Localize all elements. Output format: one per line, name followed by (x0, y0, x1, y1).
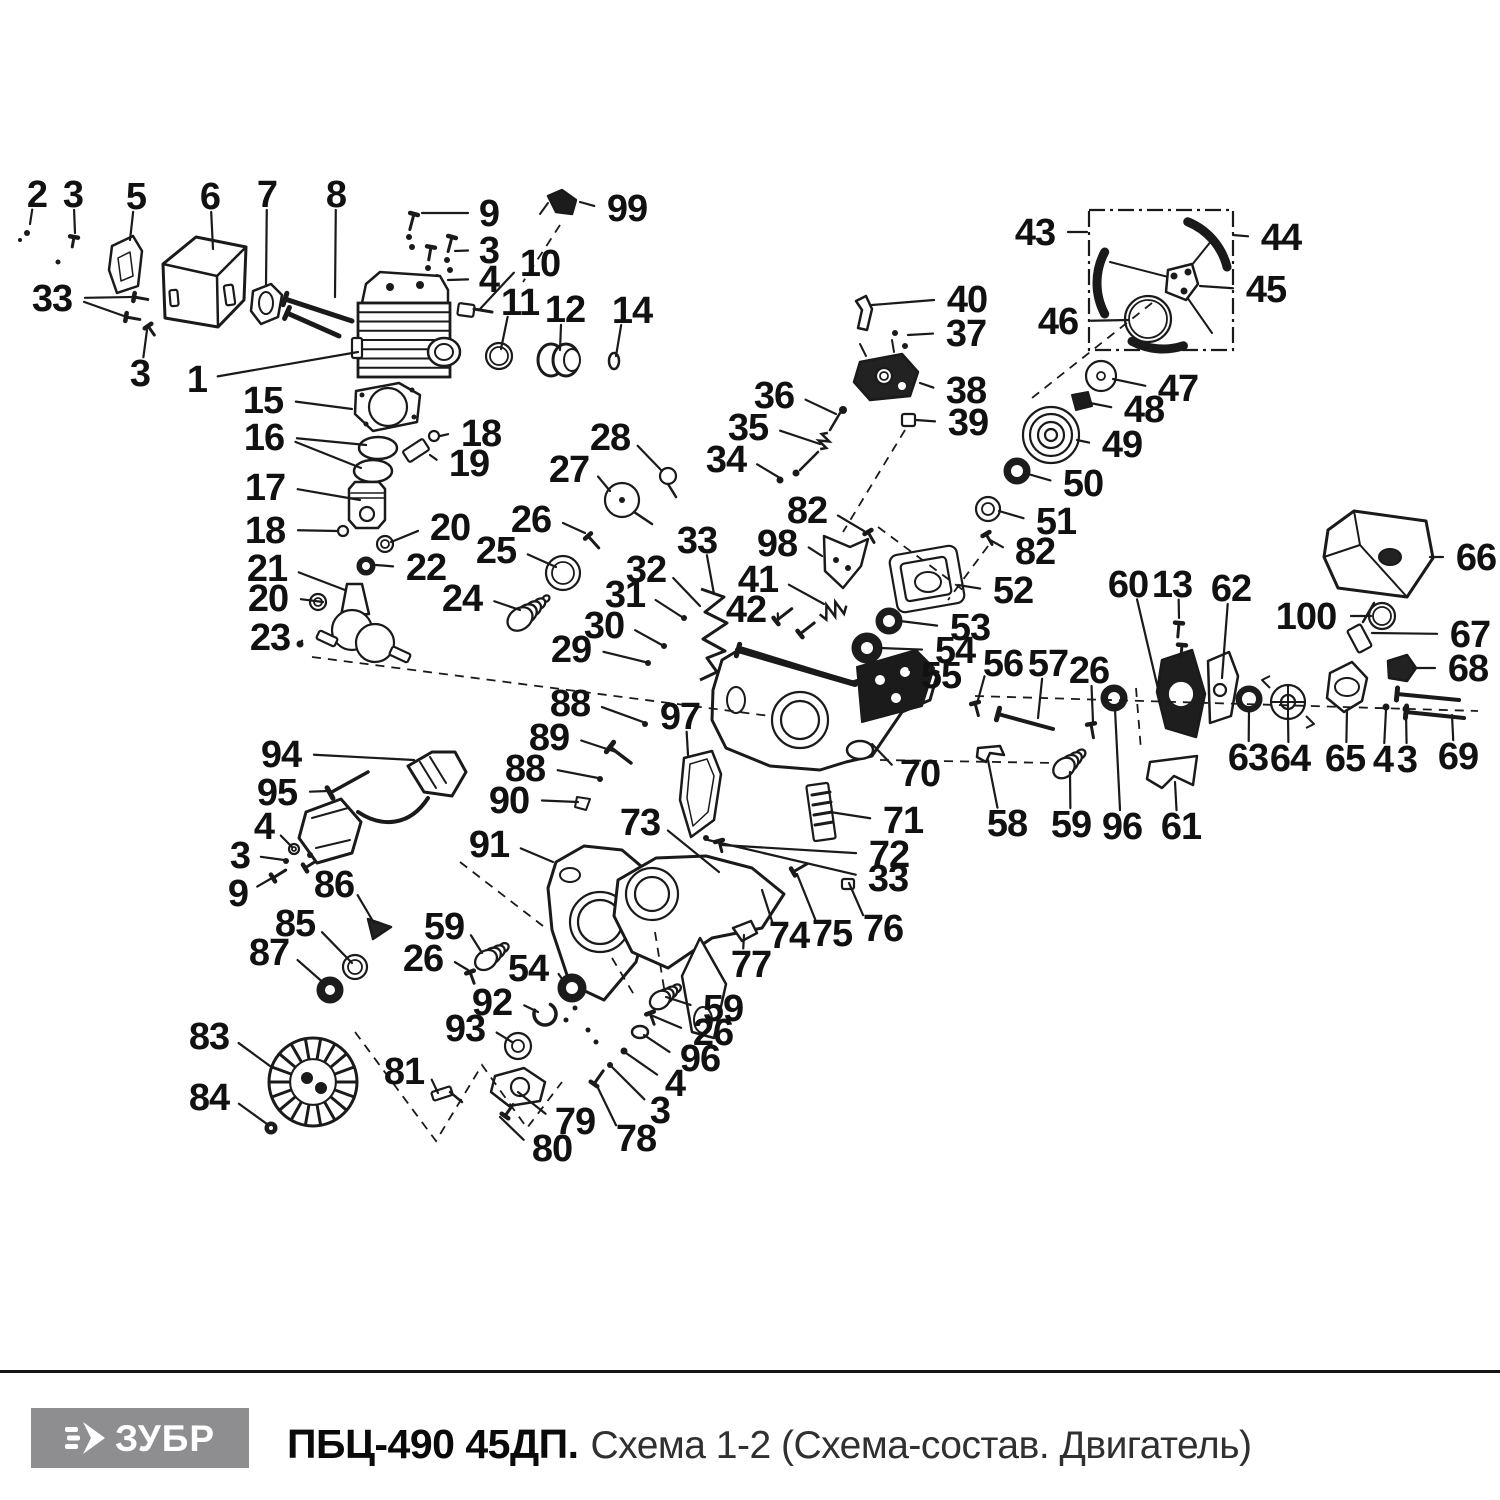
leader-line-96 (1115, 709, 1120, 810)
leader-line-67 (1372, 633, 1437, 634)
leader-line-71 (830, 812, 870, 818)
leader-line-20 (391, 531, 418, 542)
footer-divider (0, 1370, 1500, 1373)
fastener-dot (416, 281, 424, 289)
fastener-dot (902, 343, 908, 349)
part-number-label-13: 13 (1152, 564, 1192, 606)
part-number-label-76: 76 (863, 908, 903, 950)
part-number-label-12: 12 (545, 289, 585, 331)
part-number-label-62: 62 (1211, 568, 1251, 610)
poly-part (1147, 756, 1197, 788)
part-number-label-69: 69 (1438, 736, 1478, 778)
part-number-label-23: 23 (250, 617, 290, 659)
bolt-head (736, 644, 739, 656)
fastener-dot (645, 660, 651, 666)
screw-head (1175, 623, 1183, 624)
part-number-label-90: 90 (489, 780, 529, 822)
fastener-dot (898, 382, 906, 390)
screw-head (133, 293, 134, 301)
leader-line-4 (626, 1053, 657, 1075)
ring-part (1176, 689, 1186, 699)
concentric-part (626, 868, 678, 920)
fastener-dot (18, 238, 22, 242)
leader-line-28 (638, 446, 662, 471)
part-number-label-26: 26 (1069, 650, 1109, 692)
poly-part (408, 752, 466, 796)
part-number-label-65: 65 (1325, 738, 1366, 780)
leader-line-85 (322, 932, 352, 963)
leader-line-16 (295, 442, 361, 468)
screw-shaft (410, 214, 414, 229)
fastener-dot (24, 230, 30, 236)
ellipse-part (1379, 549, 1401, 565)
part-number-label-44: 44 (1261, 217, 1302, 259)
fastener-dot (1185, 269, 1192, 276)
part-number-label-6: 6 (200, 176, 220, 218)
leader-line-21 (299, 572, 345, 590)
screw-head (646, 1012, 654, 1015)
part-number-label-83: 83 (189, 1016, 229, 1058)
part-number-label-22: 22 (406, 547, 446, 589)
spring-part (819, 433, 830, 449)
leader-line-41 (789, 585, 824, 604)
ellipse-part (847, 741, 873, 759)
leader-line-98 (809, 547, 822, 556)
screw-shaft (800, 623, 814, 634)
poly-part (548, 190, 576, 214)
poly-part (362, 272, 448, 303)
seal-part (325, 985, 335, 995)
leader-line-18 (440, 434, 448, 436)
part-number-label-55: 55 (921, 655, 962, 697)
part-number-label-20: 20 (248, 578, 288, 620)
leader-line-9 (257, 878, 272, 887)
arc-part (534, 1004, 556, 1025)
part-number-label-4: 4 (1373, 739, 1394, 781)
part-edge (800, 452, 818, 470)
ring-part (1097, 372, 1105, 380)
leader-line-36 (806, 400, 836, 414)
fastener-dot (1171, 273, 1178, 280)
bolt-head (285, 308, 290, 319)
poly-part (1166, 264, 1198, 300)
fastener-dot (594, 1040, 599, 1045)
leader-line-50 (1028, 474, 1050, 480)
leader-line-90 (542, 800, 578, 802)
leader-line-4 (448, 279, 468, 280)
fastener-dot (845, 565, 851, 571)
bolt-shaft (610, 747, 631, 763)
leader-line-15 (296, 402, 352, 409)
part-number-label-57: 57 (1028, 643, 1068, 685)
part-edge (634, 512, 652, 524)
ellipse-part (259, 292, 273, 314)
leader-line-92 (524, 1005, 538, 1012)
leader-line-94 (314, 755, 414, 760)
rect-part (1347, 624, 1372, 653)
leader-line-31 (656, 600, 682, 617)
construction-dashed-line (460, 862, 543, 926)
part-number-label-94: 94 (261, 734, 302, 776)
part-number-label-93: 93 (445, 1008, 485, 1050)
disc-part (1214, 684, 1226, 696)
part-number-label-34: 34 (706, 439, 747, 481)
leader-line-27 (598, 477, 610, 491)
part-number-label-81: 81 (384, 1051, 425, 1093)
part-number-label-56: 56 (983, 643, 1023, 685)
flywheel-hub (290, 1059, 336, 1105)
model-name: ПБЦ-490 45ДП. (287, 1421, 579, 1467)
bolt-head (1396, 688, 1397, 700)
ring-part (880, 372, 888, 380)
part-number-label-1: 1 (187, 359, 208, 401)
rect-part (402, 439, 429, 463)
part-number-label-17: 17 (245, 467, 285, 509)
part-number-label-18: 18 (245, 510, 285, 552)
rect-part (842, 879, 854, 889)
ring-part (1373, 607, 1391, 625)
flywheel-magnet (301, 1072, 313, 1084)
part-number-label-99: 99 (607, 188, 647, 230)
rect-part (224, 284, 236, 305)
rect-part (389, 646, 411, 663)
seal-part (1108, 692, 1120, 704)
construction-dashed-line (1136, 688, 1141, 750)
screw-shaft (594, 1071, 603, 1084)
part-number-label-87: 87 (249, 932, 289, 974)
ellipse-part (359, 437, 397, 459)
part-number-label-59: 59 (703, 988, 743, 1030)
part-number-label-4: 4 (479, 259, 500, 301)
poly-part (1306, 716, 1314, 728)
part-number-label-37: 37 (946, 313, 986, 355)
arc-part (1132, 341, 1183, 349)
ellipse-part (564, 349, 580, 371)
fastener-dot (833, 557, 839, 563)
ring-part (982, 503, 994, 515)
part-number-label-24: 24 (442, 578, 483, 620)
seal-part (362, 562, 370, 570)
bolt-shaft (1406, 712, 1464, 718)
part-number-label-68: 68 (1448, 648, 1488, 690)
page: 2356789993104111214333115161819171820222… (0, 0, 1500, 1500)
poly-part (368, 919, 391, 939)
disc-part (369, 388, 407, 426)
disc-part (360, 507, 374, 521)
part-number-label-9: 9 (479, 193, 499, 235)
part-number-label-3: 3 (63, 174, 83, 216)
part-number-label-28: 28 (590, 417, 630, 459)
fastener-dot (444, 257, 450, 263)
leader-line-8 (335, 210, 336, 297)
part-number-label-3: 3 (1397, 739, 1417, 781)
part-number-label-19: 19 (449, 443, 489, 485)
part-number-label-82: 82 (1015, 531, 1055, 573)
ellipse-part (609, 353, 619, 369)
seal-part (566, 982, 578, 994)
leader-line-18 (298, 530, 338, 531)
leader-line-26 (455, 962, 468, 970)
bolt-head (996, 708, 999, 720)
ellipse-part (435, 344, 453, 360)
ellipse-part (727, 687, 745, 713)
poly-part (575, 797, 590, 810)
ellipse-part (560, 868, 580, 882)
part-number-label-4: 4 (254, 806, 275, 848)
part-number-label-75: 75 (812, 913, 853, 955)
leader-line-46 (1091, 320, 1128, 321)
leader-line-86 (358, 895, 374, 923)
leader-line-58 (988, 760, 997, 808)
part-number-label-97: 97 (660, 696, 700, 738)
construction-dashed-line (843, 430, 905, 532)
part-edge (217, 276, 218, 327)
part-number-label-15: 15 (243, 380, 284, 422)
part-number-label-100: 100 (1276, 596, 1336, 638)
screw-head (410, 213, 418, 215)
bolt-shaft (998, 714, 1053, 729)
part-number-label-16: 16 (244, 417, 284, 459)
part-number-label-70: 70 (900, 753, 940, 795)
poly-part (1388, 655, 1416, 681)
rect-part (352, 338, 362, 358)
part-number-label-77: 77 (731, 944, 771, 986)
leader-line-3 (261, 857, 284, 860)
leader-line-7 (266, 210, 267, 286)
part-number-label-66: 66 (1456, 537, 1496, 579)
rect-part (902, 414, 915, 426)
part-number-label-33: 33 (32, 278, 72, 320)
leader-line-99 (580, 202, 594, 206)
leader-line-51 (999, 511, 1023, 518)
part-number-label-50: 50 (1063, 463, 1103, 505)
leader-line-48 (1090, 403, 1111, 407)
fastener-dot (1181, 288, 1188, 295)
part-number-label-3: 3 (130, 353, 150, 395)
leader-line-29 (604, 652, 645, 662)
screw-shaft (588, 536, 599, 548)
screw-head (466, 971, 474, 974)
footer-title: ПБЦ-490 45ДП.Схема 1-2 (Схема-состав. Дв… (287, 1421, 1252, 1468)
leader-line-34 (757, 464, 780, 478)
leader-line-35 (780, 431, 820, 444)
fastener-dot (410, 388, 415, 393)
part-number-label-9: 9 (228, 873, 248, 915)
part-edge (540, 203, 548, 214)
leader-line-96 (644, 1035, 669, 1052)
leader-line-70 (872, 744, 892, 765)
part-number-label-52: 52 (993, 570, 1033, 612)
seal-part (883, 615, 895, 627)
disc-part (338, 526, 348, 536)
part-number-label-86: 86 (314, 864, 354, 906)
leader-line-76 (849, 883, 863, 915)
fastener-dot (412, 415, 417, 420)
screw-head (1087, 723, 1095, 724)
part-edge (860, 344, 866, 356)
screw-head (448, 236, 456, 238)
rect-part (169, 290, 178, 307)
leader-line-39 (916, 420, 935, 421)
leader-line-87 (298, 960, 326, 985)
part-edge (892, 340, 894, 352)
part-edge (830, 413, 840, 430)
part-number-label-33: 33 (868, 858, 908, 900)
poly-part (1262, 676, 1270, 688)
fastener-dot (307, 852, 313, 858)
exploded-parts-diagram: 2356789993104111214333115161819171820222… (0, 0, 1500, 1370)
screw-head (971, 702, 979, 704)
leader-line-45 (1200, 286, 1233, 288)
poly-part (1324, 511, 1433, 597)
part-number-label-46: 46 (1038, 301, 1078, 343)
part-number-label-73: 73 (620, 802, 660, 844)
fastener-dot (447, 267, 453, 273)
leader-line-38 (920, 383, 933, 388)
leader-line-80 (500, 1117, 524, 1140)
part-number-label-20: 20 (430, 507, 470, 549)
ellipse-part (1335, 678, 1359, 696)
leader-line-32 (673, 578, 700, 606)
part-number-label-58: 58 (987, 803, 1027, 845)
leader-line-30 (635, 630, 662, 645)
part-number-label-3: 3 (230, 835, 250, 877)
fastener-dot (619, 497, 625, 503)
fastener-dot (409, 244, 415, 250)
part-number-label-26: 26 (511, 499, 551, 541)
leader-line-33 (84, 302, 124, 316)
leader-line-16 (297, 438, 366, 445)
leader-line-83 (239, 1043, 270, 1066)
part-number-label-84: 84 (189, 1077, 230, 1119)
poly-part (163, 237, 246, 327)
fastener-dot (564, 1018, 569, 1023)
leader-line-59 (471, 935, 482, 953)
part-number-label-8: 8 (326, 174, 346, 216)
leader-line-78 (598, 1088, 616, 1125)
disc-part (429, 431, 439, 441)
leader-line-26 (653, 1016, 681, 1028)
leader-line-3 (455, 250, 468, 251)
bolt-head (283, 293, 287, 304)
seal-part (1011, 465, 1023, 477)
ring-part (381, 540, 389, 548)
rect-part (457, 303, 475, 317)
rect-part (431, 1086, 453, 1101)
leader-line-84 (239, 1104, 267, 1124)
ring-part (512, 1040, 524, 1052)
part-number-label-5: 5 (126, 176, 147, 218)
ellipse-part (354, 460, 392, 482)
disc-part (356, 624, 394, 662)
seal-part (269, 1126, 273, 1130)
part-number-label-45: 45 (1246, 269, 1287, 311)
screw-head (427, 246, 435, 247)
part-number-label-42: 42 (726, 589, 766, 631)
part-number-label-60: 60 (1108, 564, 1148, 606)
fastener-dot (56, 260, 61, 265)
bolt-shaft (330, 772, 368, 793)
part-number-label-49: 49 (1102, 424, 1142, 466)
zubr-logo: ЗУБР (31, 1408, 249, 1468)
part-number-label-96: 96 (1102, 806, 1142, 848)
fastener-dot (875, 675, 885, 685)
fastener-dot (793, 470, 800, 477)
part-number-label-2: 2 (27, 174, 47, 216)
poly-part (118, 252, 133, 281)
leader-line-88 (558, 770, 598, 778)
part-number-label-59: 59 (1051, 804, 1091, 846)
leader-line-4 (281, 836, 292, 847)
screw-head (70, 236, 78, 237)
part-number-label-59: 59 (424, 906, 464, 948)
leader-line-47 (1113, 379, 1145, 386)
part-number-label-7: 7 (257, 174, 277, 216)
leader-line-22 (376, 565, 393, 566)
leader-line-95 (310, 791, 328, 792)
fastener-dot (364, 422, 369, 427)
fastener-dot (573, 1006, 578, 1011)
part-number-label-10: 10 (520, 243, 560, 285)
leader-line-53 (900, 621, 937, 626)
part-number-label-74: 74 (769, 915, 810, 957)
part-edge (668, 484, 676, 497)
part-number-label-64: 64 (1270, 738, 1311, 780)
zubr-logo-text: ЗУБР (115, 1420, 215, 1457)
ring-part (552, 562, 574, 584)
bolt-head (327, 788, 333, 799)
screw-shaft (793, 864, 807, 872)
leader-line-24 (494, 601, 520, 610)
part-number-label-11: 11 (501, 282, 540, 324)
fastener-dot (386, 283, 394, 291)
ring-part (490, 347, 508, 365)
fastener-dot (891, 693, 901, 703)
leader-line-37 (908, 334, 933, 335)
part-number-label-61: 61 (1161, 806, 1202, 848)
arc-part (1097, 252, 1105, 314)
poly-part (977, 746, 1004, 762)
flywheel-magnet (315, 1082, 327, 1094)
part-number-label-80: 80 (532, 1128, 572, 1170)
schema-subtitle: Схема 1-2 (Схема-состав. Двигатель) (591, 1424, 1252, 1467)
leader-line-19 (430, 455, 437, 460)
fastener-dot (892, 330, 898, 336)
leader-line-54 (880, 648, 922, 650)
screw-head (125, 313, 126, 321)
part-number-label-27: 27 (549, 449, 589, 491)
part-number-label-43: 43 (1015, 212, 1055, 254)
leader-line-1 (218, 352, 358, 376)
part-edge (474, 309, 492, 312)
leader-line-26 (563, 523, 585, 533)
ignition-wire (358, 798, 428, 822)
fastener-dot (586, 1028, 591, 1033)
ellipse-part (915, 572, 941, 592)
leader-line-3 (612, 1067, 644, 1099)
fastener-dot (425, 265, 431, 271)
zubr-logo-icon (65, 1419, 107, 1457)
part-number-label-25: 25 (476, 530, 517, 572)
leader-line-88 (602, 707, 643, 722)
part-number-label-54: 54 (508, 948, 549, 990)
poly-part (824, 536, 868, 588)
part-number-label-33: 33 (677, 520, 717, 562)
part-number-label-82: 82 (787, 490, 827, 532)
part-number-label-29: 29 (551, 629, 591, 671)
part-number-label-91: 91 (469, 824, 510, 866)
leader-line-40 (872, 300, 934, 305)
